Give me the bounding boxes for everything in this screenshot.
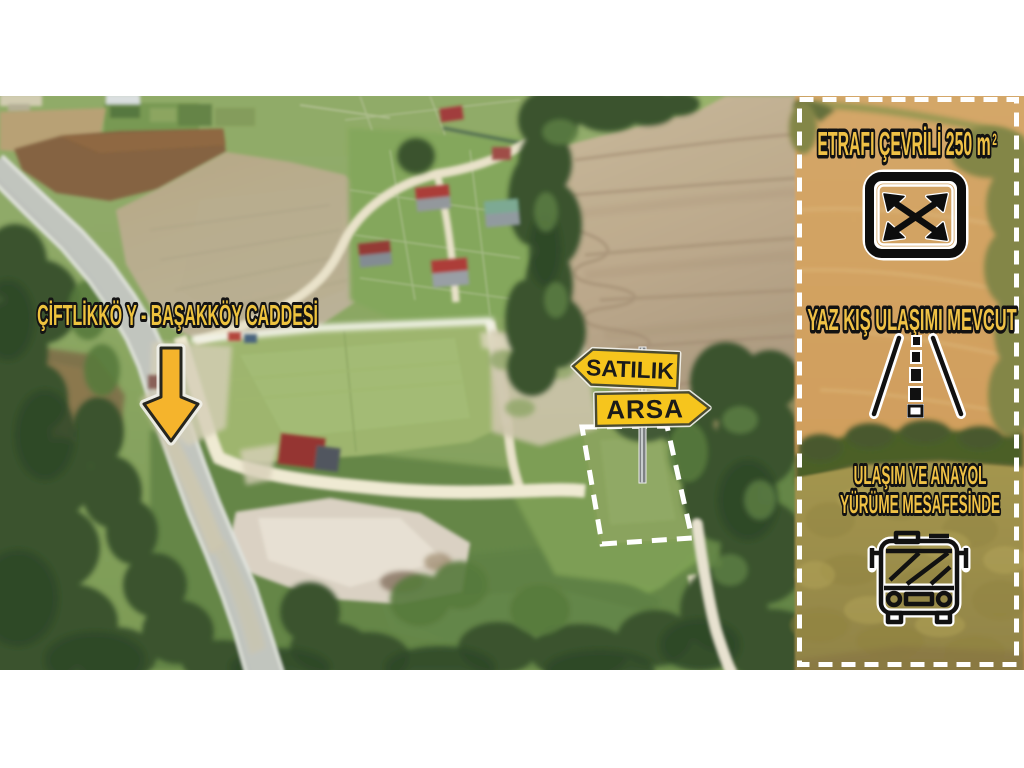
svg-text:2: 2 [992,130,997,149]
svg-text:ARSA: ARSA [606,393,684,424]
svg-text:ULAŞIM VE ANAYOL: ULAŞIM VE ANAYOL [854,461,987,490]
svg-text:SATILIK: SATILIK [586,354,675,384]
svg-text:ETRAFI ÇEVRİLİ 250 m: ETRAFI ÇEVRİLİ 250 m [817,127,990,163]
svg-text:YÜRÜME MESAFESİNDE: YÜRÜME MESAFESİNDE [840,490,1000,519]
svg-text:YAZ KIŞ ULAŞIMI MEVCUT: YAZ KIŞ ULAŞIMI MEVCUT [807,304,1016,338]
svg-text:ÇİFTLİKKÖ Y - BAŞAKKÖY CADDESİ: ÇİFTLİKKÖ Y - BAŞAKKÖY CADDESİ [37,299,318,331]
